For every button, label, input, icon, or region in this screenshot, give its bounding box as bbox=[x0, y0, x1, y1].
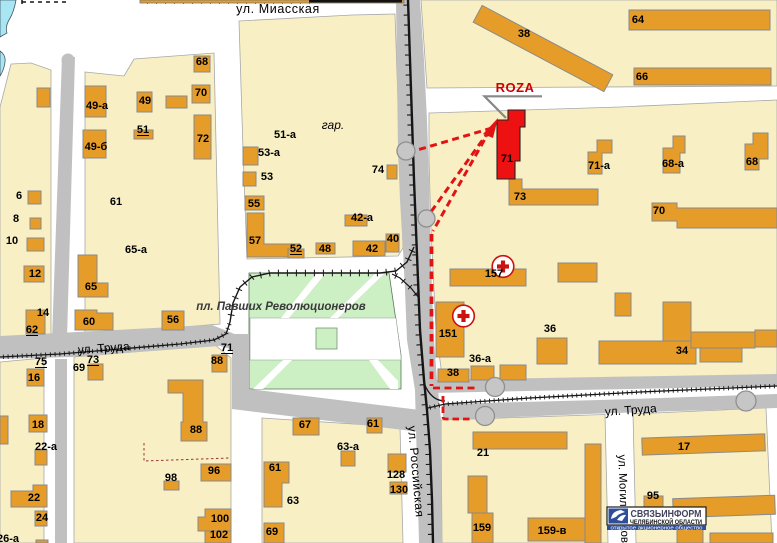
svg-text:71: 71 bbox=[221, 342, 233, 354]
svg-text:72: 72 bbox=[197, 133, 209, 145]
svg-text:17: 17 bbox=[678, 441, 690, 453]
svg-text:пл. Павших Революционеров: пл. Павших Революционеров bbox=[196, 301, 366, 313]
svg-text:38: 38 bbox=[518, 28, 530, 40]
svg-text:70: 70 bbox=[195, 87, 207, 99]
svg-text:67: 67 bbox=[299, 419, 311, 431]
svg-text:36: 36 bbox=[544, 323, 556, 335]
svg-text:22: 22 bbox=[28, 492, 40, 504]
svg-text:157: 157 bbox=[485, 268, 503, 280]
svg-text:66: 66 bbox=[636, 71, 648, 83]
svg-text:96: 96 bbox=[208, 465, 220, 477]
svg-text:74: 74 bbox=[372, 164, 385, 176]
svg-text:42-a: 42-a bbox=[351, 212, 374, 224]
svg-text:100: 100 bbox=[211, 513, 229, 525]
svg-text:151: 151 bbox=[439, 328, 457, 340]
svg-text:40: 40 bbox=[387, 233, 399, 245]
svg-text:61: 61 bbox=[269, 462, 281, 474]
svg-text:73: 73 bbox=[87, 354, 99, 366]
svg-text:98: 98 bbox=[165, 472, 177, 484]
svg-text:26-a: 26-a bbox=[0, 533, 20, 543]
svg-text:36-a: 36-a bbox=[469, 353, 492, 365]
svg-text:130: 130 bbox=[390, 484, 408, 496]
svg-text:70: 70 bbox=[653, 205, 665, 217]
svg-text:14: 14 bbox=[37, 307, 50, 319]
svg-text:68: 68 bbox=[746, 156, 758, 168]
svg-text:48: 48 bbox=[319, 243, 331, 255]
svg-text:63: 63 bbox=[287, 495, 299, 507]
svg-text:24: 24 bbox=[36, 512, 49, 524]
svg-text:16: 16 bbox=[28, 372, 40, 384]
svg-text:71-a: 71-a bbox=[588, 160, 611, 172]
svg-text:68-a: 68-a bbox=[662, 158, 685, 170]
svg-text:159: 159 bbox=[473, 522, 491, 534]
svg-text:61: 61 bbox=[367, 418, 379, 430]
svg-text:62: 62 bbox=[26, 324, 38, 336]
svg-text:53: 53 bbox=[261, 171, 273, 183]
svg-text:69: 69 bbox=[266, 526, 278, 538]
svg-text:159-в: 159-в bbox=[538, 525, 567, 537]
svg-text:22-a: 22-a bbox=[35, 441, 58, 453]
svg-text:38: 38 bbox=[447, 367, 459, 379]
svg-text:49-б: 49-б bbox=[85, 141, 108, 153]
svg-text:95: 95 bbox=[647, 490, 659, 502]
svg-text:18: 18 bbox=[32, 419, 44, 431]
svg-text:49-a: 49-a bbox=[86, 100, 109, 112]
svg-text:55: 55 bbox=[248, 198, 260, 210]
svg-text:71: 71 bbox=[501, 153, 513, 165]
svg-text:64: 64 bbox=[632, 14, 645, 26]
svg-text:51-a: 51-a bbox=[274, 129, 297, 141]
svg-text:42: 42 bbox=[366, 243, 378, 255]
svg-text:12: 12 bbox=[29, 268, 41, 280]
svg-text:61: 61 bbox=[110, 196, 122, 208]
svg-text:10: 10 bbox=[6, 235, 18, 247]
svg-text:68: 68 bbox=[196, 56, 208, 68]
svg-text:69: 69 bbox=[73, 362, 85, 374]
svg-text:6: 6 bbox=[16, 190, 22, 202]
svg-text:ROZA: ROZA bbox=[496, 80, 535, 95]
svg-text:34: 34 bbox=[676, 345, 689, 357]
svg-text:56: 56 bbox=[167, 314, 179, 326]
svg-text:65-a: 65-a bbox=[125, 244, 148, 256]
svg-text:ул. Миасская: ул. Миасская bbox=[236, 2, 320, 16]
svg-text:75: 75 bbox=[35, 356, 47, 368]
svg-text:21: 21 bbox=[477, 447, 489, 459]
svg-text:60: 60 bbox=[83, 316, 95, 328]
svg-text:73: 73 bbox=[514, 191, 526, 203]
svg-text:57: 57 bbox=[249, 235, 261, 247]
svg-text:102: 102 bbox=[210, 529, 228, 541]
svg-text:128: 128 bbox=[387, 469, 405, 481]
svg-text:53-a: 53-a bbox=[258, 147, 281, 159]
svg-text:51: 51 bbox=[137, 124, 149, 136]
svg-text:гар.: гар. bbox=[322, 118, 344, 132]
svg-text:открытое акционерное общество: открытое акционерное общество bbox=[611, 525, 703, 531]
svg-text:49: 49 bbox=[139, 95, 151, 107]
svg-text:88: 88 bbox=[190, 424, 202, 436]
svg-text:88: 88 bbox=[211, 355, 223, 367]
svg-text:8: 8 bbox=[13, 213, 19, 225]
svg-text:65: 65 bbox=[85, 281, 97, 293]
svg-text:52: 52 bbox=[290, 243, 302, 255]
svg-text:63-a: 63-a bbox=[337, 441, 360, 453]
